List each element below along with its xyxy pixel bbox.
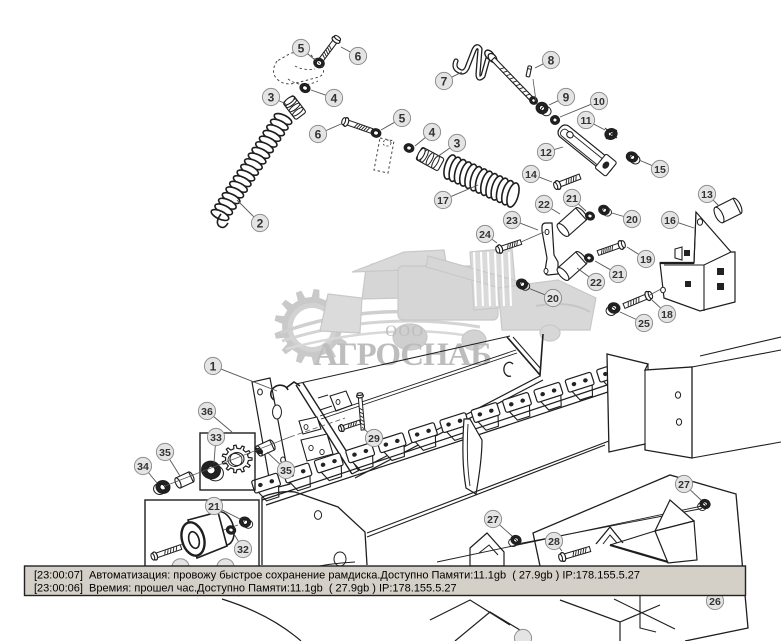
svg-text:32: 32: [237, 544, 249, 556]
svg-text:16: 16: [664, 215, 676, 227]
svg-text:8: 8: [548, 53, 555, 67]
svg-text:27: 27: [678, 479, 690, 491]
svg-text:29: 29: [368, 433, 380, 445]
svg-text:23: 23: [506, 215, 518, 227]
svg-text:7: 7: [441, 74, 448, 88]
svg-text:13: 13: [701, 189, 713, 201]
svg-text:10: 10: [593, 96, 605, 108]
svg-text:4: 4: [331, 91, 338, 105]
svg-text:18: 18: [661, 309, 673, 321]
svg-text:11: 11: [580, 115, 591, 127]
svg-text:1: 1: [210, 359, 217, 373]
svg-text:2: 2: [257, 216, 264, 230]
svg-text:9: 9: [563, 90, 570, 104]
svg-text:34: 34: [137, 461, 149, 473]
svg-text:22: 22: [538, 199, 550, 211]
svg-text:5: 5: [399, 111, 406, 125]
svg-text:19: 19: [640, 254, 652, 266]
svg-text:36: 36: [201, 406, 213, 418]
svg-text:21: 21: [612, 269, 624, 281]
svg-text:6: 6: [315, 127, 322, 141]
svg-text:[23:00:06] Времия: прошел час: [23:00:06] Времия: прошел час.Доступно П…: [34, 583, 457, 595]
svg-text:17: 17: [437, 195, 449, 207]
svg-text:[23:00:07] Автоматизация: про: [23:00:07] Автоматизация: провожу быстро…: [34, 570, 640, 582]
svg-text:33: 33: [210, 432, 222, 444]
svg-text:4: 4: [429, 125, 436, 139]
svg-text:15: 15: [654, 164, 666, 176]
svg-text:21: 21: [208, 501, 220, 513]
svg-text:3: 3: [268, 90, 275, 104]
svg-text:6: 6: [355, 49, 362, 63]
svg-text:20: 20: [626, 214, 638, 226]
svg-text:35: 35: [280, 465, 292, 477]
svg-text:28: 28: [548, 536, 560, 548]
svg-text:25: 25: [638, 318, 650, 330]
svg-text:26: 26: [709, 596, 721, 608]
svg-text:27: 27: [487, 514, 499, 526]
svg-text:АГРОСНАБ: АГРОСНАБ: [314, 337, 492, 373]
svg-text:20: 20: [547, 293, 559, 305]
svg-text:22: 22: [590, 277, 602, 289]
svg-text:14: 14: [525, 169, 537, 181]
svg-text:12: 12: [540, 147, 552, 159]
svg-text:21: 21: [566, 193, 578, 205]
svg-text:3: 3: [454, 136, 461, 150]
svg-text:5: 5: [298, 41, 305, 55]
svg-text:35: 35: [159, 447, 171, 459]
svg-text:24: 24: [479, 229, 491, 241]
